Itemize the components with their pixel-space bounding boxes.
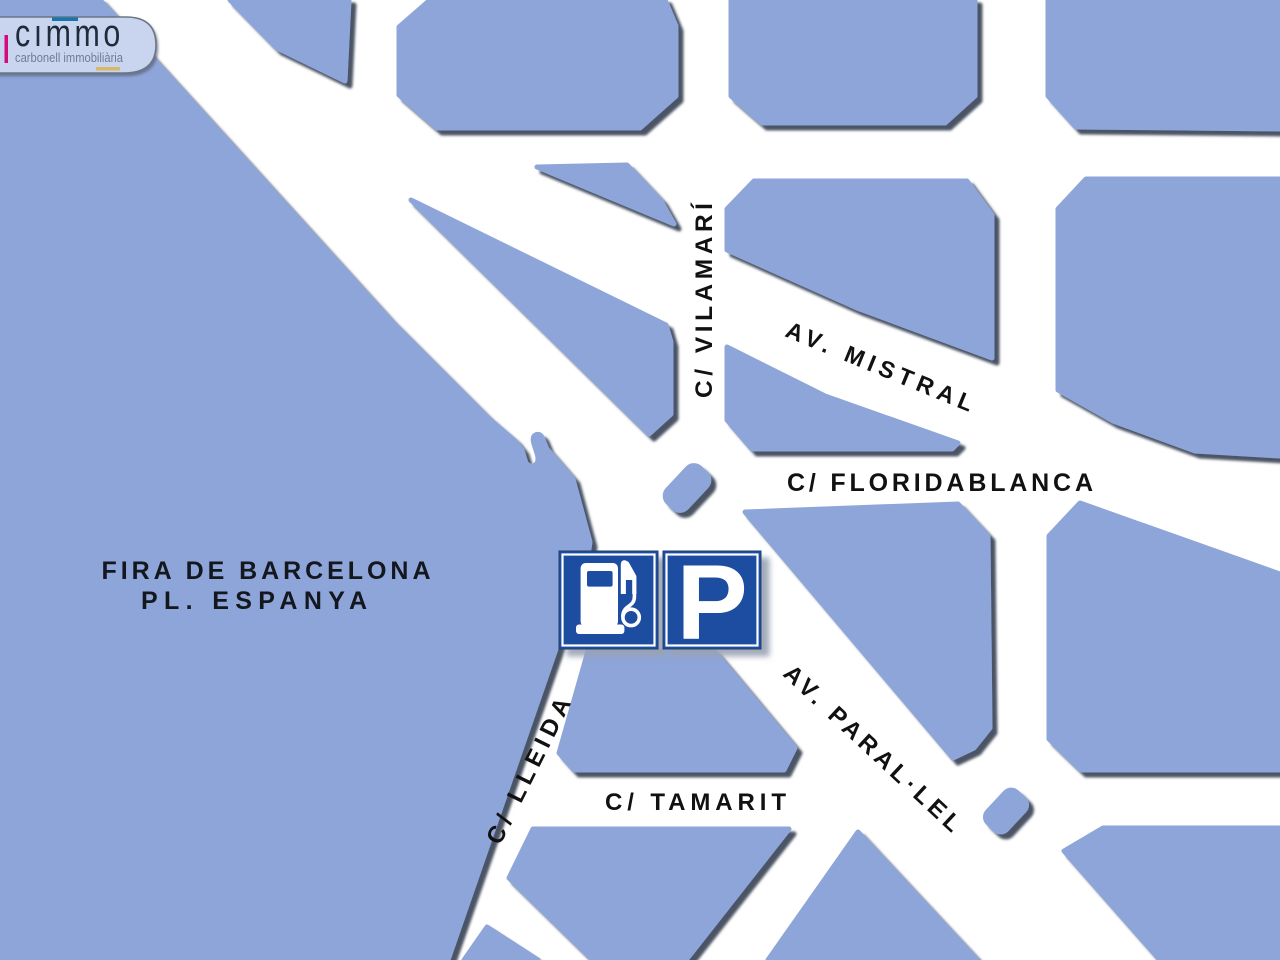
svg-text:C/ TAMARIT: C/ TAMARIT <box>605 789 786 816</box>
svg-text:carbonell immobiliària: carbonell immobiliària <box>15 51 123 65</box>
svg-text:P: P <box>676 542 747 662</box>
svg-text:C/ FLORIDABLANCA: C/ FLORIDABLANCA <box>787 469 1093 497</box>
svg-text:cımmo: cımmo <box>15 13 124 55</box>
